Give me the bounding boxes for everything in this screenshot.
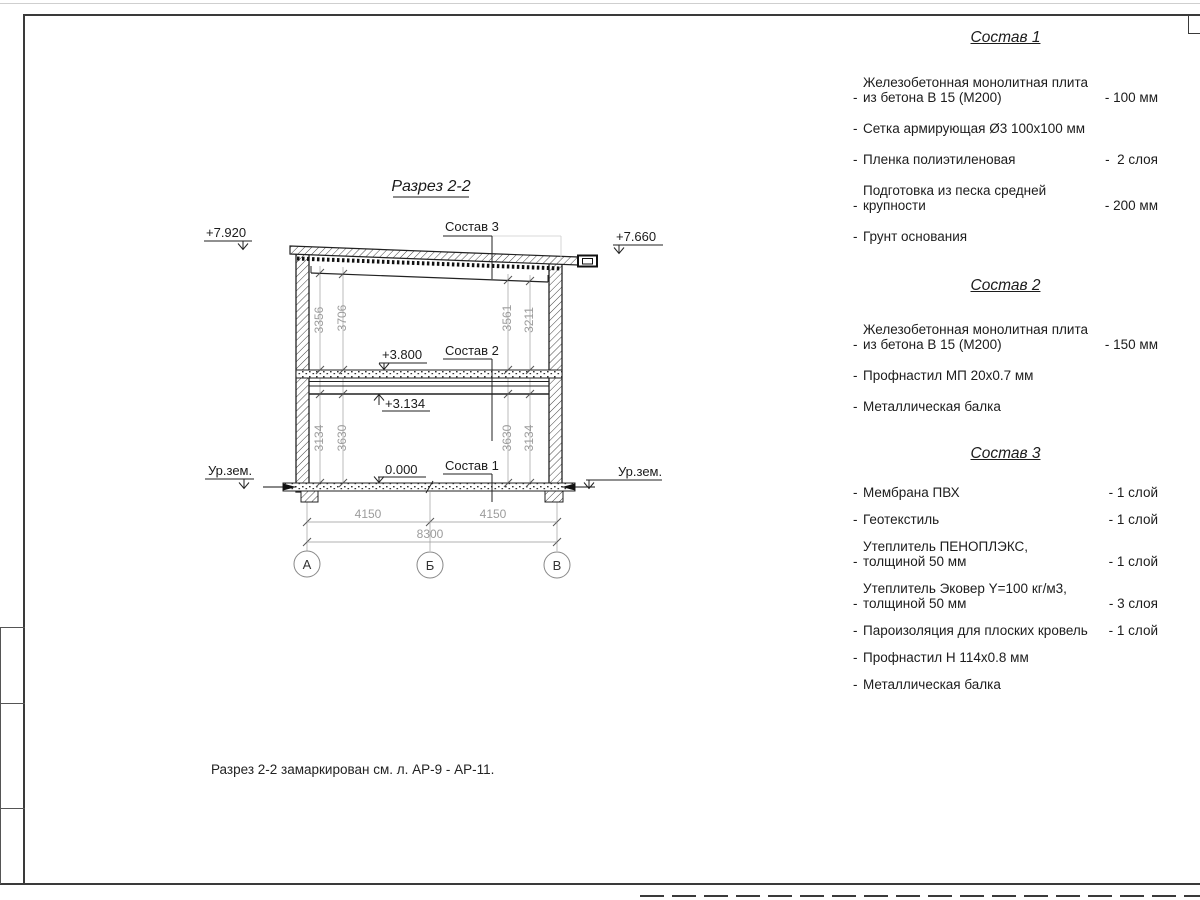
ref-sostav1: Состав 1 xyxy=(445,458,499,473)
item-text: Пленка полиэтиленовая xyxy=(863,152,1015,167)
item-text: Пароизоляция для плоских кровель xyxy=(863,623,1088,638)
list-item: - Подготовка из песка средней крупности … xyxy=(853,183,1158,213)
dim-3561: 3561 xyxy=(500,304,514,331)
drawing-title: Разрез 2-2 xyxy=(391,178,470,195)
item-bullet: - xyxy=(853,337,863,352)
list-item: - Сетка армирующая Ø3 100х100 мм xyxy=(853,121,1158,136)
item-bullet: - xyxy=(853,198,863,213)
item-text: Профнастил МП 20х0.7 мм xyxy=(863,368,1033,383)
ground-level-left: Ур.зем. xyxy=(208,463,252,478)
compositions-panel: Состав 1 - Железобетонная монолитная пли… xyxy=(853,30,1158,704)
list-item: - Утеплитель ПЕНОПЛЭКС, толщиной 50 мм -… xyxy=(853,539,1158,569)
item-text: Профнастил Н 114х0.8 мм xyxy=(863,650,1029,665)
item-value: - 3 слоя xyxy=(1109,596,1158,611)
item-bullet: - xyxy=(853,650,863,665)
sostav2-title: Состав 2 xyxy=(853,278,1158,293)
level-roof-right: +7.660 xyxy=(616,229,656,244)
sheet-bottom-dashed-edge xyxy=(640,895,1200,897)
level-floor2-beam: +3.134 xyxy=(385,396,425,411)
item-text: Геотекстиль xyxy=(863,512,939,527)
dim-3706: 3706 xyxy=(335,304,349,331)
margin-divider xyxy=(0,703,25,704)
margin-edge xyxy=(0,627,1,884)
item-text: Железобетонная монолитная плита из бетон… xyxy=(863,322,1088,352)
item-text: Металлическая балка xyxy=(863,399,1001,414)
item-bullet: - xyxy=(853,90,863,105)
item-text: Сетка армирующая Ø3 100х100 мм xyxy=(863,121,1085,136)
dim-4150-right: 4150 xyxy=(480,507,507,521)
list-item: - Железобетонная монолитная плита из бет… xyxy=(853,75,1158,105)
list-item: - Геотекстиль - 1 слой xyxy=(853,512,1158,527)
note-text: Разрез 2-2 замаркирован см. л. АР-9 - АР… xyxy=(211,762,494,777)
level-floor2-top: +3.800 xyxy=(382,347,422,362)
sostav3-list: - Мембрана ПВХ - 1 слой - Геотекстиль - … xyxy=(853,485,1158,692)
section-drawing: Разрез 2-2 xyxy=(0,0,760,650)
dim-3630-right: 3630 xyxy=(500,424,514,451)
item-bullet: - xyxy=(853,554,863,569)
item-bullet: - xyxy=(853,399,863,414)
sostav2-list: - Железобетонная монолитная плита из бет… xyxy=(853,322,1158,414)
dim-3630-left: 3630 xyxy=(335,424,349,451)
item-text: Утеплитель Эковер Y=100 кг/м3, толщиной … xyxy=(863,581,1067,611)
item-bullet: - xyxy=(853,229,863,244)
item-value: - 1 слой xyxy=(1109,554,1158,569)
item-value: - 2 слоя xyxy=(1105,152,1158,167)
frame-notch xyxy=(1188,14,1189,33)
item-bullet: - xyxy=(853,152,863,167)
level-roof-left: +7.920 xyxy=(206,225,246,240)
list-item: - Грунт основания xyxy=(853,229,1158,244)
right-footing xyxy=(545,491,563,502)
list-item: - Профнастил МП 20х0.7 мм xyxy=(853,368,1158,383)
dim-3356: 3356 xyxy=(312,306,326,333)
ref-sostav3: Состав 3 xyxy=(445,219,499,234)
sheet-frame-bottom xyxy=(0,883,1200,885)
item-bullet: - xyxy=(853,596,863,611)
item-value: - 1 слой xyxy=(1109,485,1158,500)
ground-level-right: Ур.зем. xyxy=(618,464,662,479)
list-item: - Металлическая балка xyxy=(853,677,1158,692)
item-text: Мембрана ПВХ xyxy=(863,485,960,500)
sostav3-title: Состав 3 xyxy=(853,446,1158,461)
item-value: - 200 мм xyxy=(1105,198,1158,213)
list-item: - Железобетонная монолитная плита из бет… xyxy=(853,322,1158,352)
list-item: - Металлическая балка xyxy=(853,399,1158,414)
axis-b: Б xyxy=(426,558,435,573)
item-value: - 100 мм xyxy=(1105,90,1158,105)
frame-notch xyxy=(1188,33,1200,34)
item-bullet: - xyxy=(853,623,863,638)
item-bullet: - xyxy=(853,121,863,136)
item-bullet: - xyxy=(853,368,863,383)
drawing-sheet: { "sheet": { "title": "Разрез 2-2", "not… xyxy=(0,0,1200,900)
sostav1-title: Состав 1 xyxy=(853,30,1158,45)
sostav1-list: - Железобетонная монолитная плита из бет… xyxy=(853,75,1158,244)
item-value: - 1 слой xyxy=(1109,512,1158,527)
ref-sostav2: Состав 2 xyxy=(445,343,499,358)
item-value: - 150 мм xyxy=(1105,337,1158,352)
item-text: Утеплитель ПЕНОПЛЭКС, толщиной 50 мм xyxy=(863,539,1028,569)
item-text: Металлическая балка xyxy=(863,677,1001,692)
axis-bubbles: А Б В xyxy=(294,551,570,578)
list-item: - Пароизоляция для плоских кровель - 1 с… xyxy=(853,623,1158,638)
list-item: - Мембрана ПВХ - 1 слой xyxy=(853,485,1158,500)
level-zero: 0.000 xyxy=(385,462,418,477)
item-text: Подготовка из песка средней крупности xyxy=(863,183,1046,213)
dim-3211: 3211 xyxy=(522,307,536,333)
axis-a: А xyxy=(303,557,312,572)
item-text: Грунт основания xyxy=(863,229,967,244)
item-value: - 1 слой xyxy=(1109,623,1158,638)
list-item: - Утеплитель Эковер Y=100 кг/м3, толщино… xyxy=(853,581,1158,611)
item-bullet: - xyxy=(853,512,863,527)
dim-4150-left: 4150 xyxy=(355,507,382,521)
list-item: - Профнастил Н 114х0.8 мм xyxy=(853,650,1158,665)
list-item: - Пленка полиэтиленовая - 2 слоя xyxy=(853,152,1158,167)
dim-3134-right: 3134 xyxy=(522,424,536,451)
dim-8300: 8300 xyxy=(417,527,444,541)
horizontal-dim-labels: 4150 4150 8300 xyxy=(355,507,507,541)
margin-divider xyxy=(0,808,25,809)
left-footing xyxy=(301,491,318,502)
item-text: Железобетонная монолитная плита из бетон… xyxy=(863,75,1088,105)
dim-3134-left: 3134 xyxy=(312,424,326,451)
axis-v: В xyxy=(553,558,562,573)
item-bullet: - xyxy=(853,677,863,692)
ground-floor-slab xyxy=(263,481,595,502)
middle-floor-slab xyxy=(296,370,562,394)
item-bullet: - xyxy=(853,485,863,500)
